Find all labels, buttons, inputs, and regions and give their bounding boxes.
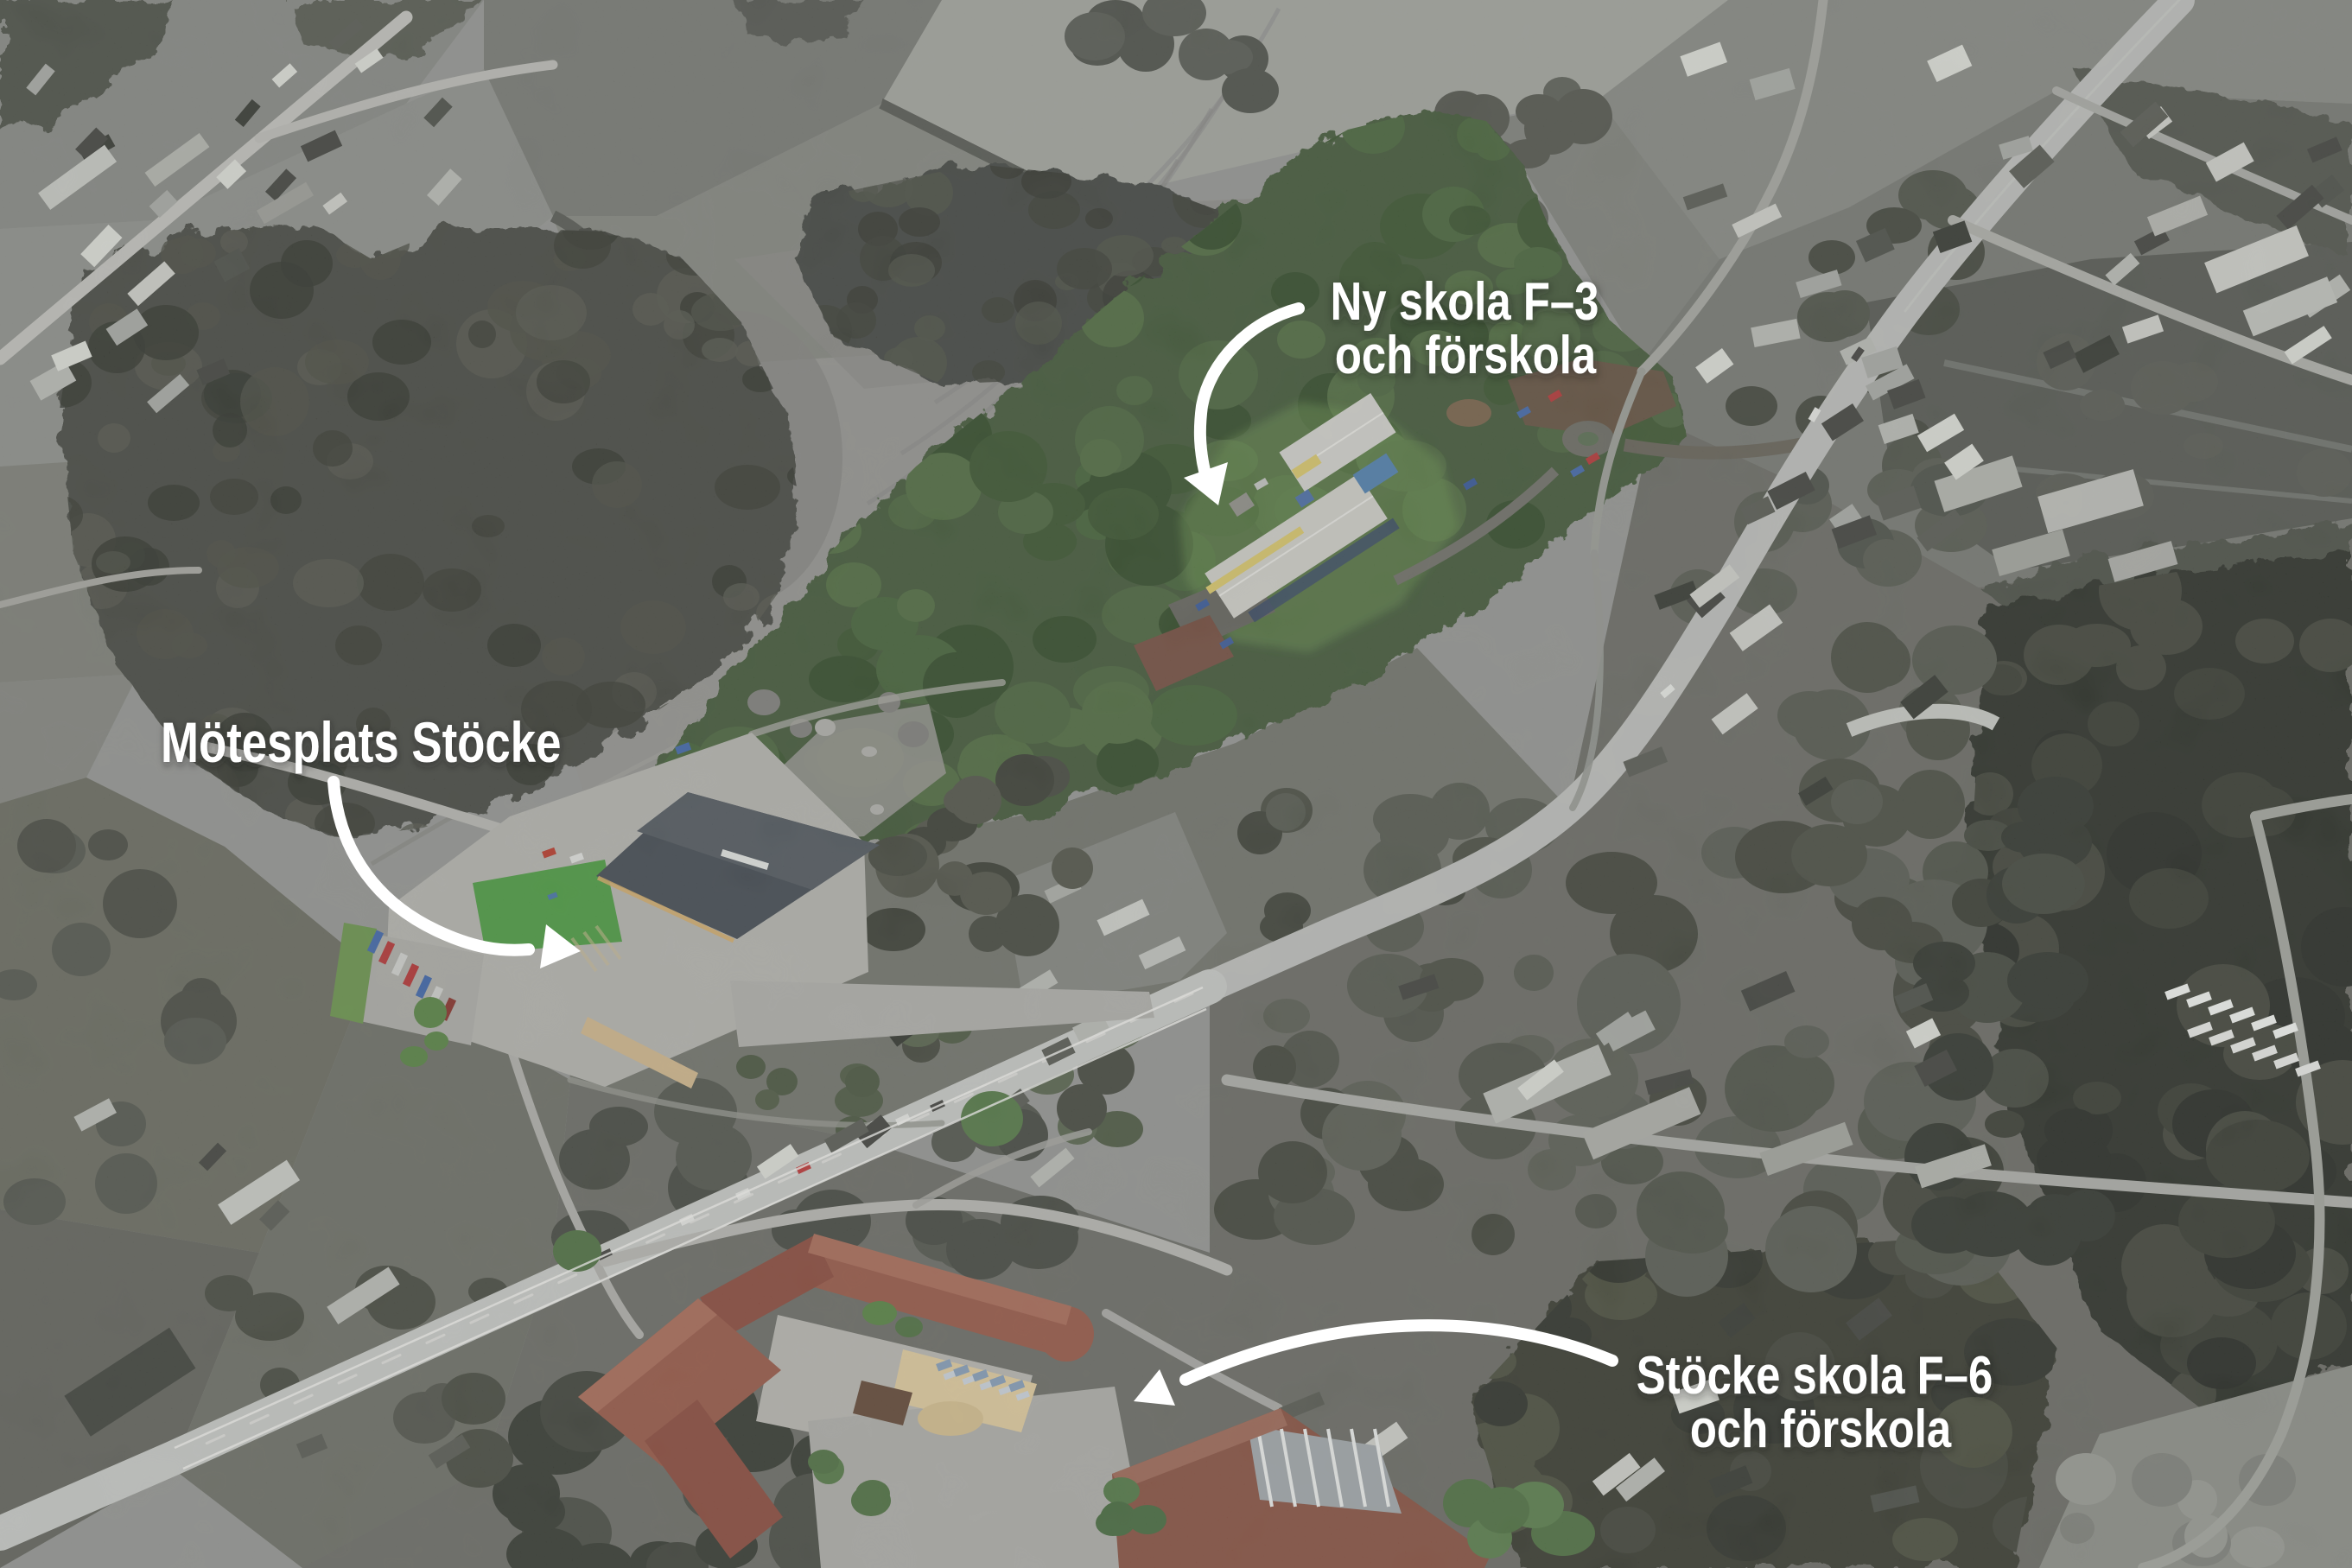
svg-text:Stöcke skola F–6: Stöcke skola F–6 xyxy=(1637,1346,1993,1406)
svg-text:Ny skola F–3: Ny skola F–3 xyxy=(1331,272,1599,332)
svg-text:och förskola: och förskola xyxy=(1335,326,1597,385)
svg-text:och förskola: och förskola xyxy=(1690,1400,1952,1459)
svg-text:Mötesplats Stöcke: Mötesplats Stöcke xyxy=(161,710,561,774)
